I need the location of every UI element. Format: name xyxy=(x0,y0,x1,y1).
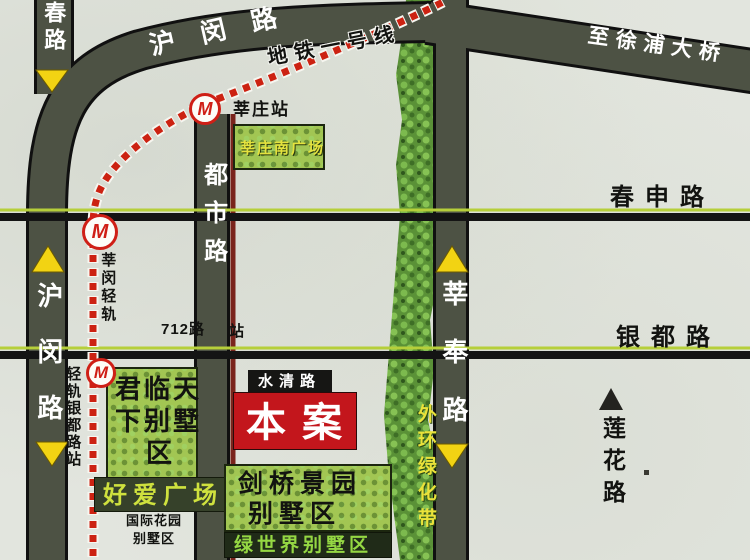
shuiqing-label-band: 水清路 xyxy=(248,370,332,392)
map-dot xyxy=(644,470,649,475)
xinzhuang-south-plaza-box: 莘庄南广场 xyxy=(233,124,325,170)
metro-station-icon-xinzhuang: M xyxy=(189,93,221,125)
dushi-road-label: 都市路 xyxy=(199,162,227,276)
intl-villa-label-row2: 别墅区 xyxy=(133,532,175,547)
yindu-station-label: 轻轨银都路站 xyxy=(64,366,81,468)
lianhua-road-label: 莲花路 xyxy=(599,416,625,512)
location-map: 莘庄南广场 君临天 下别墅 区 好爱广场 国际花园 别墅区 水清路 本案 剑桥景… xyxy=(0,0,750,560)
junlintianxia-label-row3: 区 xyxy=(146,439,172,469)
metro-station-icon-yindu: M xyxy=(86,358,116,388)
lvshijie-villa-band: 绿世界别墅区 xyxy=(224,532,392,558)
lightrail-label: 莘闵轻轨 xyxy=(99,252,116,324)
bus-stop-label: 站 xyxy=(229,323,244,340)
xinfeng-road-label: 莘奉路 xyxy=(438,280,468,454)
xinzhuang-south-plaza-label: 莘庄南广场 xyxy=(240,140,325,157)
yindu-road-label: 银都路 xyxy=(616,324,721,352)
intl-villa-label-row1: 国际花园 xyxy=(126,514,182,529)
jianqiao-label-row2: 别墅区 xyxy=(248,500,341,529)
shuiqing-label: 水清路 xyxy=(258,373,321,390)
jianqiao-villa-box: 剑桥景园 别墅区 xyxy=(224,464,392,532)
metro-station-icon-lightrail: M xyxy=(82,214,118,250)
metro-m-symbol: M xyxy=(92,221,109,244)
metro-m-symbol: M xyxy=(94,363,108,383)
metro-m-symbol: M xyxy=(198,99,213,120)
benan-label: 本案 xyxy=(246,400,358,446)
junlintianxia-villa-box: 君临天 下别墅 区 xyxy=(106,367,198,491)
jianqiao-label-row1: 剑桥景园 xyxy=(238,470,362,499)
junlintianxia-label-row1: 君临天 xyxy=(115,375,202,405)
arrow-up-lianhua xyxy=(599,388,623,410)
zhongchun-road-label: 中春路 xyxy=(41,0,66,55)
chunshen-road-label: 春申路 xyxy=(610,184,715,212)
lvshijie-label: 绿世界别墅区 xyxy=(234,535,372,557)
greenbelt-label: 外环绿化带 xyxy=(414,404,436,534)
bus-712-label: 712路 xyxy=(161,321,205,338)
haoai-plaza-label: 好爱广场 xyxy=(103,482,223,510)
benan-highlight-box: 本案 xyxy=(233,392,357,450)
humin-road-label-left: 沪闵路 xyxy=(33,282,63,450)
junlintianxia-label-row2: 下别墅 xyxy=(115,407,202,437)
xinzhuang-station-label: 莘庄站 xyxy=(233,100,290,120)
